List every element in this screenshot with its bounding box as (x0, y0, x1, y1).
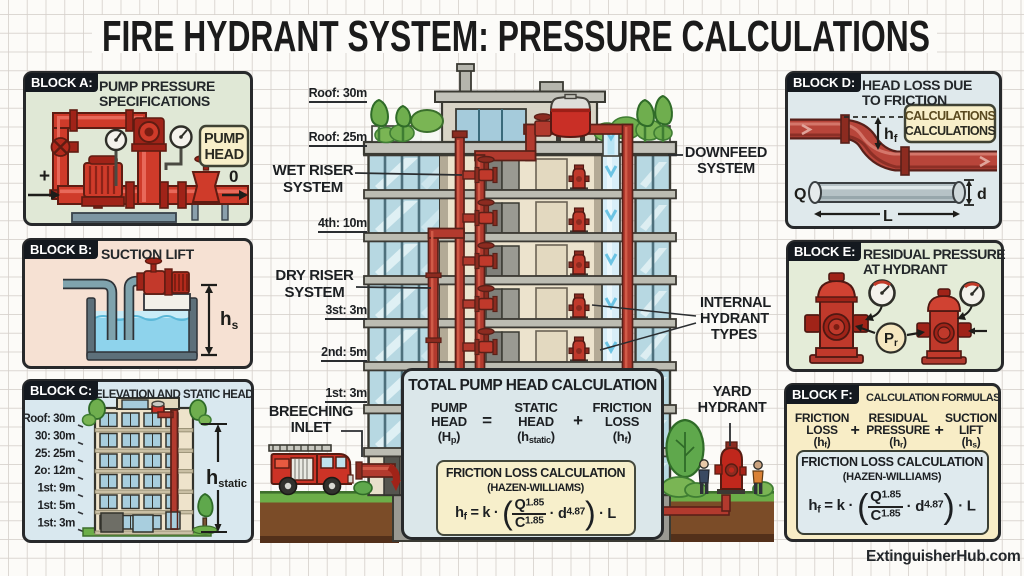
svg-text:25: 25m: 25: 25m (35, 448, 75, 460)
svg-text:hs: hs (220, 309, 239, 332)
svg-text:Q: Q (794, 186, 806, 203)
svg-text:d: d (977, 186, 987, 203)
svg-text:CALCULATIONS: CALCULATIONS (905, 109, 996, 123)
svg-text:HEAD: HEAD (204, 147, 243, 163)
svg-text:+: + (39, 166, 50, 187)
svg-text:2o: 12m: 2o: 12m (34, 465, 75, 477)
svg-text:hf: hf (884, 126, 898, 145)
svg-text:1st: 3m: 1st: 3m (38, 517, 76, 529)
svg-text:30: 30m: 30: 30m (35, 430, 75, 442)
svg-text:1st: 9m: 1st: 9m (38, 483, 76, 495)
svg-text:0: 0 (229, 167, 238, 186)
svg-text:L: L (883, 208, 893, 225)
svg-text:PUMP: PUMP (204, 131, 245, 147)
svg-text:hstatic: hstatic (206, 467, 247, 490)
svg-text:CALCULATIONS: CALCULATIONS (905, 124, 996, 138)
svg-text:1st: 5m: 1st: 5m (38, 500, 76, 512)
svg-text:Roof: 30m: Roof: 30m (25, 413, 75, 425)
